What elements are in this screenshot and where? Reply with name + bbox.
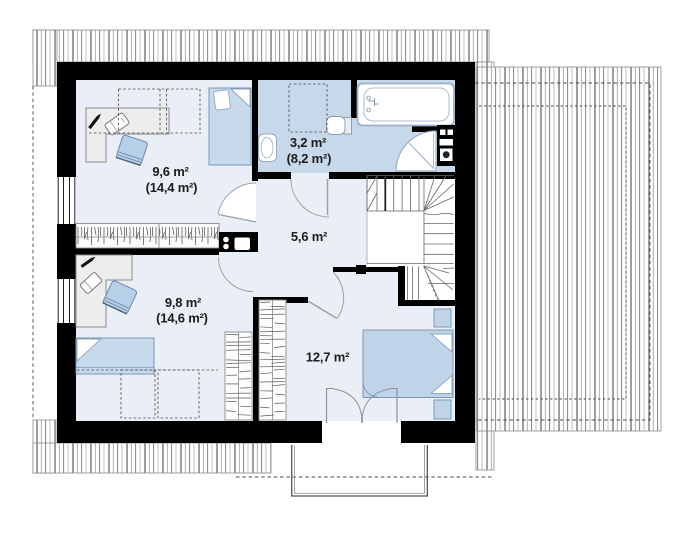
svg-text:(14,6 m²): (14,6 m²) — [156, 311, 208, 326]
svg-text:12,7 m²: 12,7 m² — [306, 350, 350, 365]
svg-text:5,6 m²: 5,6 m² — [291, 229, 328, 244]
svg-text:(14,4 m²): (14,4 m²) — [146, 180, 198, 195]
svg-text:9,6 m²: 9,6 m² — [152, 164, 189, 179]
svg-text:(8,2 m²): (8,2 m²) — [287, 151, 332, 166]
svg-text:3,2 m²: 3,2 m² — [290, 135, 327, 150]
svg-text:9,8 m²: 9,8 m² — [165, 295, 202, 310]
